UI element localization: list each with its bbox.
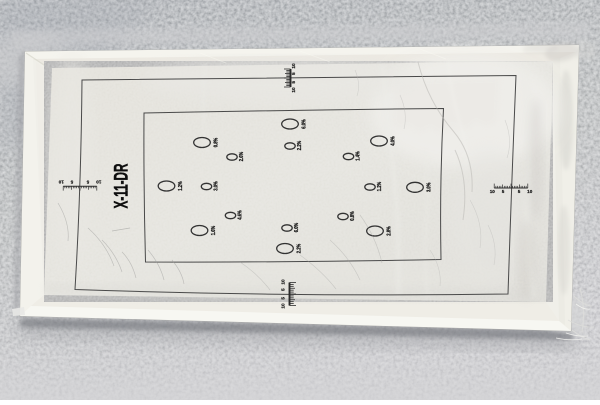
svg-text:1.6%: 1.6% [211,225,217,235]
svg-text:4.0%: 4.0% [391,136,397,146]
svg-text:10: 10 [281,303,286,309]
svg-text:1.4%: 1.4% [356,151,362,161]
svg-text:10: 10 [291,87,296,93]
svg-text:10: 10 [96,180,102,185]
svg-text:X-11-DR: X-11-DR [111,163,132,208]
svg-text:10: 10 [527,189,533,194]
svg-text:10: 10 [490,189,496,194]
svg-text:3.0%: 3.0% [214,181,220,191]
svg-text:5: 5 [502,189,505,194]
svg-text:3.0%: 3.0% [427,182,433,192]
svg-text:10: 10 [281,279,286,285]
svg-text:1.2%: 1.2% [178,181,184,191]
svg-text:2.8%: 2.8% [387,226,393,236]
svg-text:2.6%: 2.6% [239,151,245,161]
svg-text:5: 5 [281,297,286,300]
svg-text:1.2%: 1.2% [377,181,383,191]
svg-text:2.2%: 2.2% [297,140,303,150]
svg-text:2.2%: 2.2% [297,243,303,253]
svg-text:5: 5 [281,288,286,291]
svg-text:4.6%: 4.6% [238,210,244,220]
svg-text:6.0%: 6.0% [302,119,308,129]
svg-text:6.0%: 6.0% [294,222,300,232]
svg-text:0.8%: 0.8% [350,211,356,221]
svg-text:5: 5 [291,72,296,75]
svg-text:5: 5 [70,180,73,185]
svg-text:10: 10 [58,180,64,185]
svg-text:5: 5 [518,189,521,194]
svg-text:5: 5 [291,81,296,84]
svg-text:10: 10 [291,63,296,69]
svg-text:5: 5 [86,180,89,185]
svg-text:0.8%: 0.8% [214,137,220,147]
